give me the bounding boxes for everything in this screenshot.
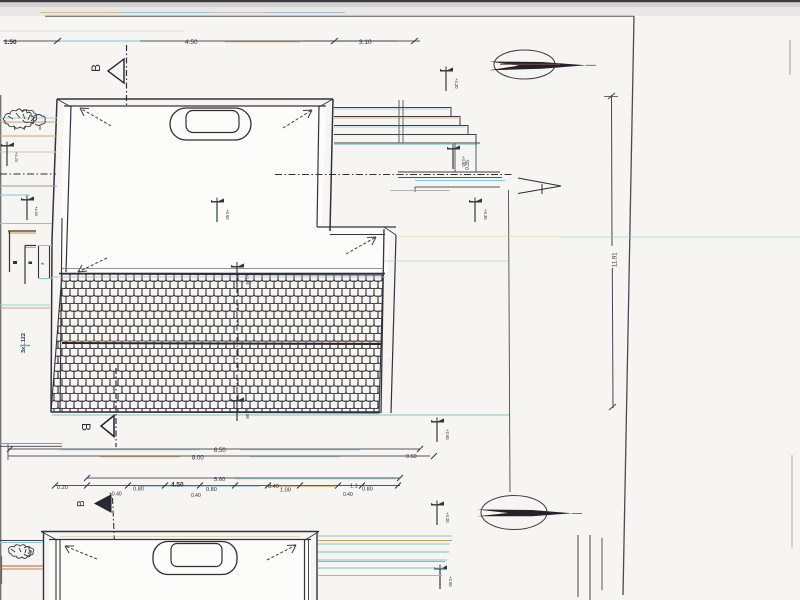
svg-text:+4.20: +4.20 [14, 152, 19, 163]
svg-text:1.00: 1.00 [280, 488, 291, 494]
svg-text:+6.58: +6.58 [245, 274, 250, 285]
svg-text:0.40: 0.40 [268, 484, 279, 490]
svg-text:B: B [76, 500, 87, 507]
svg-text:4.50: 4.50 [171, 482, 184, 489]
svg-text:0.80: 0.80 [206, 487, 217, 493]
svg-text:+6.92: +6.92 [225, 209, 230, 220]
svg-text:+6.58: +6.58 [245, 408, 250, 419]
svg-text:1.50: 1.50 [4, 39, 17, 46]
svg-text:0.40: 0.40 [191, 493, 201, 499]
svg-text:3x1.122: 3x1.122 [21, 333, 27, 353]
svg-text:6.50: 6.50 [214, 448, 226, 454]
svg-text:+4.20: +4.20 [445, 512, 450, 523]
svg-text:4.50: 4.50 [185, 39, 198, 46]
svg-text:0.80: 0.80 [133, 487, 144, 493]
svg-text:8.00: 8.00 [192, 456, 204, 462]
svg-text:5.60: 5.60 [214, 477, 225, 483]
svg-text:0.20: 0.20 [57, 485, 68, 491]
svg-text:11.91: 11.91 [613, 252, 619, 267]
svg-text:+6.35: +6.35 [483, 209, 488, 220]
svg-text:B: B [89, 64, 103, 72]
svg-text:+4.20: +4.20 [454, 78, 459, 89]
svg-text:0.35: 0.35 [465, 160, 471, 170]
svg-text:0.80: 0.80 [362, 487, 373, 493]
svg-text:B: B [79, 423, 93, 431]
svg-text:1.1: 1.1 [350, 484, 358, 490]
svg-text:3.10: 3.10 [359, 39, 372, 46]
svg-text:+2.60: +2.60 [445, 429, 450, 440]
svg-text:+2.60: +2.60 [448, 576, 453, 587]
svg-text:+4.60: +4.60 [34, 206, 39, 217]
svg-text:0.40: 0.40 [343, 492, 353, 498]
svg-text:0.60: 0.60 [406, 454, 417, 460]
